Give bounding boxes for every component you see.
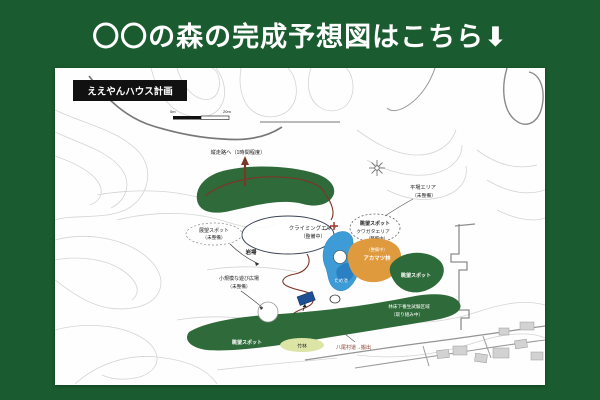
page-title: 〇〇の森の完成予想図はこちら⬇ <box>92 15 508 54</box>
red-pine-label: アカマツ林 <box>364 254 392 262</box>
road-note-label: 八尾村道→搬出 <box>336 344 371 351</box>
village-buildings <box>437 322 543 363</box>
site-plan-map: 縦走路へ（1時間程度） クライミングエリア （整備中） 展望スポット （未整備）… <box>55 68 545 385</box>
forest-area-upper <box>197 167 334 213</box>
beetle-area-label: クワガタエリア <box>356 228 390 235</box>
flat-area-label: 平場エリア <box>410 183 436 191</box>
flat-area-leader <box>385 199 413 216</box>
small-plaza-label-2: （未整備） <box>228 283 251 290</box>
climbing-area-label: クライミングエリア <box>289 224 338 232</box>
road-top-right-loop <box>504 68 543 124</box>
ridge-trail-arrowhead <box>241 156 249 165</box>
test-zone-label-2: （取り組み中） <box>391 311 423 318</box>
small-marker-ellipse <box>330 295 340 303</box>
pond-marker-circle <box>334 251 347 264</box>
viewpoint-hill-label: 眺望スポット <box>401 272 431 279</box>
viewpoint-strip-label: 眺望スポット <box>232 339 262 346</box>
test-zone-label-1: 林床下養生試験区域 <box>388 303 430 310</box>
plan-title-box: ええやんハウス計画 <box>73 80 187 101</box>
road-note-leader <box>345 334 355 342</box>
viewpoint-west-note: （未整備） <box>203 234 226 241</box>
viewpoint-west-outline <box>186 223 242 245</box>
road-upper-right <box>387 68 435 111</box>
red-pine-note: （整備中） <box>367 246 388 253</box>
viewpoint-west-label: 展望スポット <box>199 227 229 234</box>
scale-left-label: 0m <box>170 109 176 114</box>
rock-area-label: 岩場 <box>245 248 257 256</box>
ridge-trail-label: 縦走路へ（1時間程度） <box>211 148 266 156</box>
pond-label: ため池 <box>334 277 348 284</box>
scale-bar: 0m 20m <box>170 109 231 120</box>
header-banner: 〇〇の森の完成予想図はこちら⬇ <box>0 0 600 68</box>
map-panel: 縦走路へ（1時間程度） クライミングエリア （整備中） 展望スポット （未整備）… <box>55 68 545 385</box>
plaza-circle <box>258 302 278 322</box>
forest-strip <box>187 294 461 350</box>
plan-title-label: ええやんハウス計画 <box>87 86 173 98</box>
climbing-area-note: （整備中） <box>300 233 325 240</box>
flat-area-note: （未整備） <box>412 192 436 199</box>
viewpoint-west-arrowhead <box>255 262 259 266</box>
small-plaza-leader <box>241 291 263 308</box>
viewpoint-east-label: 眺望スポット <box>360 220 390 227</box>
scale-right-label: 20m <box>223 109 231 114</box>
bamboo-label: 竹林 <box>297 343 307 350</box>
small-plaza-label-1: 小規模な遊び広場 <box>219 275 259 282</box>
